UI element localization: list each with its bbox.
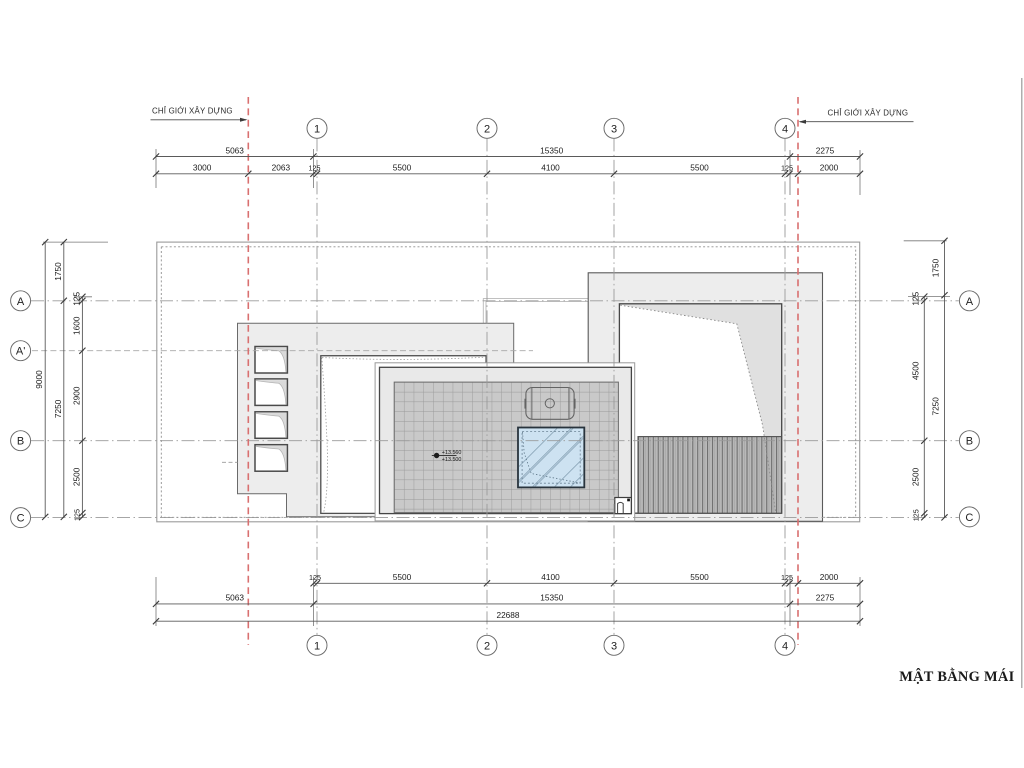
svg-text:5063: 5063 [225,145,244,155]
svg-text:5500: 5500 [393,163,412,173]
svg-text:2275: 2275 [816,593,835,603]
svg-text:4: 4 [782,640,788,652]
svg-text:CHỈ GIỚI XÂY DỰNG: CHỈ GIỚI XÂY DỰNG [828,109,909,118]
svg-text:2063: 2063 [272,163,291,173]
svg-text:1750: 1750 [931,258,941,277]
svg-text:3000: 3000 [193,163,212,173]
svg-text:B: B [17,436,24,448]
svg-text:125: 125 [72,509,81,521]
svg-text:2275: 2275 [816,145,835,155]
svg-text:2000: 2000 [820,163,839,173]
svg-text:125: 125 [911,291,921,305]
svg-text:3: 3 [611,123,617,135]
svg-text:1600: 1600 [71,316,81,335]
svg-text:15350: 15350 [540,593,563,603]
svg-text:1750: 1750 [53,262,63,281]
svg-text:3: 3 [611,640,617,652]
svg-text:CHỈ GIỚI XÂY DỰNG: CHỈ GIỚI XÂY DỰNG [152,107,233,116]
svg-text:A: A [17,296,25,308]
svg-text:A': A' [16,346,25,358]
svg-text:7250: 7250 [53,399,63,418]
svg-text:4: 4 [782,123,788,135]
svg-text:2900: 2900 [71,386,81,405]
svg-text:4500: 4500 [911,361,921,380]
svg-text:22688: 22688 [496,610,519,620]
svg-text:1: 1 [314,640,320,652]
svg-text:A: A [966,296,974,308]
svg-text:+13.560: +13.560 [442,450,462,456]
svg-text:2: 2 [484,123,490,135]
svg-text:5500: 5500 [690,572,709,582]
svg-text:125: 125 [309,573,321,582]
svg-text:125: 125 [309,164,321,173]
svg-text:125: 125 [781,164,793,173]
svg-text:B: B [966,436,973,448]
svg-text:125: 125 [912,509,921,521]
svg-text:C: C [965,512,973,524]
svg-text:9000: 9000 [34,370,44,389]
svg-text:2000: 2000 [820,572,839,582]
svg-text:15350: 15350 [540,145,563,155]
svg-text:7250: 7250 [931,397,941,416]
svg-text:5500: 5500 [690,163,709,173]
svg-text:MẬT BẰNG MÁI: MẬT BẰNG MÁI [899,668,1014,685]
svg-text:4100: 4100 [541,163,560,173]
svg-text:C: C [17,513,25,525]
svg-text:125: 125 [781,573,793,582]
svg-text:5500: 5500 [393,572,412,582]
svg-text:2: 2 [484,640,490,652]
svg-text:5063: 5063 [226,593,245,603]
svg-text:1: 1 [314,123,320,135]
svg-text:2500: 2500 [911,467,921,486]
svg-text:+13.500: +13.500 [442,457,462,463]
svg-text:2500: 2500 [71,467,81,486]
svg-text:4100: 4100 [541,572,560,582]
svg-text:125: 125 [71,291,81,305]
